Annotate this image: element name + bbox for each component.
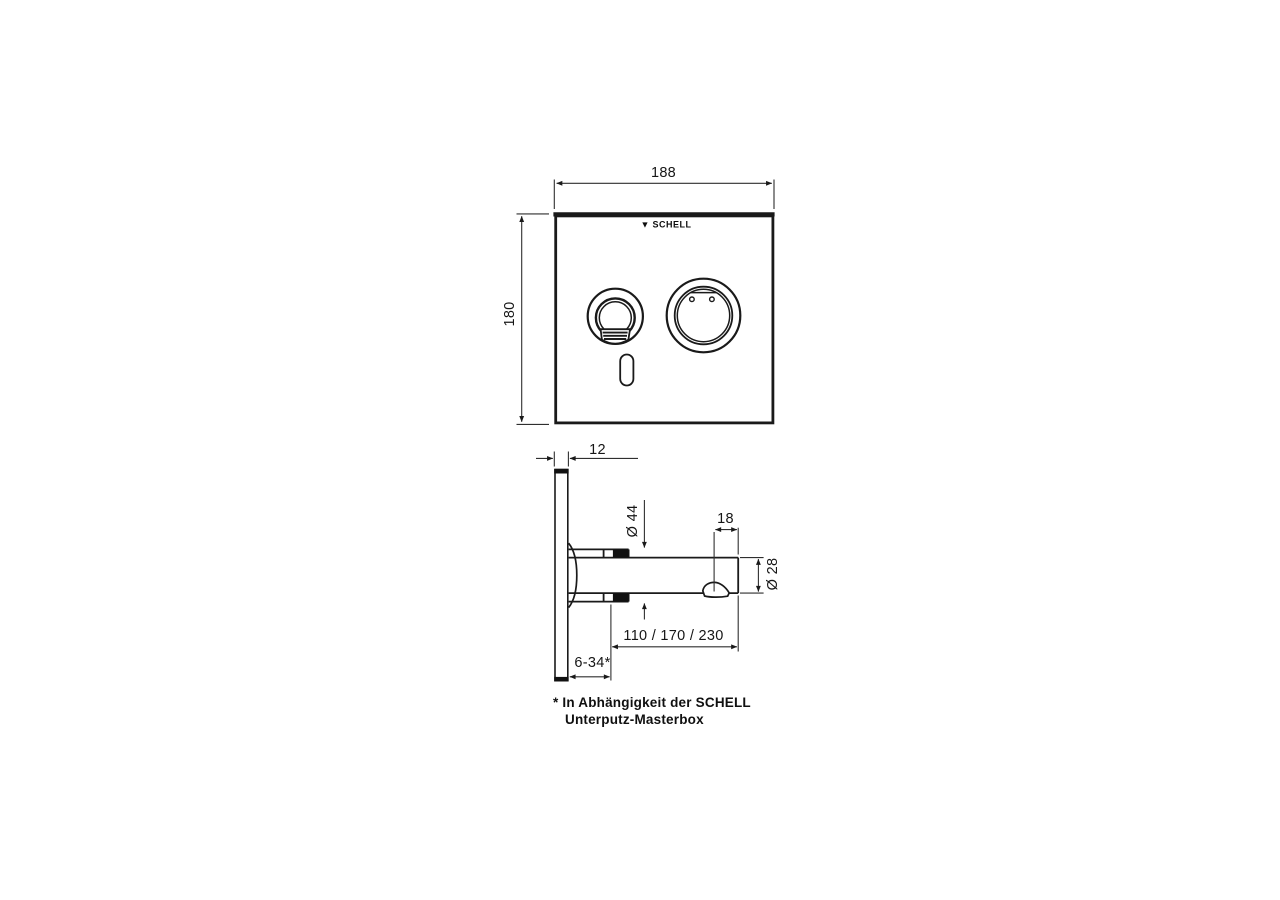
wall-plate bbox=[555, 470, 568, 681]
seal-ring-top bbox=[613, 549, 629, 557]
footnote-line-2: Unterputz-Masterbox bbox=[565, 712, 704, 727]
dimension-drawing bbox=[0, 0, 1280, 900]
dim-label-flange-diameter: Ø 44 bbox=[625, 504, 641, 537]
dim-label-mounting-depth: 6-34* bbox=[574, 655, 610, 671]
dim-label-plate-thickness: 12 bbox=[589, 442, 606, 458]
side-view bbox=[536, 452, 764, 682]
dim-label-panel-width: 188 bbox=[651, 165, 676, 181]
schell-logo: ▼ SCHELL bbox=[641, 221, 692, 230]
logo-text: SCHELL bbox=[652, 221, 691, 230]
side-view-dimensions bbox=[536, 452, 764, 681]
dim-label-spout-reach: 110 / 170 / 230 bbox=[623, 628, 723, 644]
logo-triangle-icon: ▼ bbox=[641, 221, 650, 230]
outlet-tip bbox=[703, 582, 729, 597]
spout-assembly bbox=[569, 549, 739, 601]
footnote-line-1: * In Abhängigkeit der SCHELL bbox=[553, 695, 751, 710]
seal-ring-bottom bbox=[613, 593, 629, 602]
technical-drawing-page: ▼ SCHELL 188 180 12 Ø 44 18 Ø 28 110 / 1… bbox=[0, 0, 1280, 900]
front-view bbox=[517, 180, 775, 425]
dim-label-outlet-length: 18 bbox=[717, 511, 734, 527]
escutcheon-bell bbox=[569, 543, 577, 607]
dim-label-spout-diameter: Ø 28 bbox=[765, 558, 781, 591]
dim-label-panel-height: 180 bbox=[502, 301, 518, 326]
